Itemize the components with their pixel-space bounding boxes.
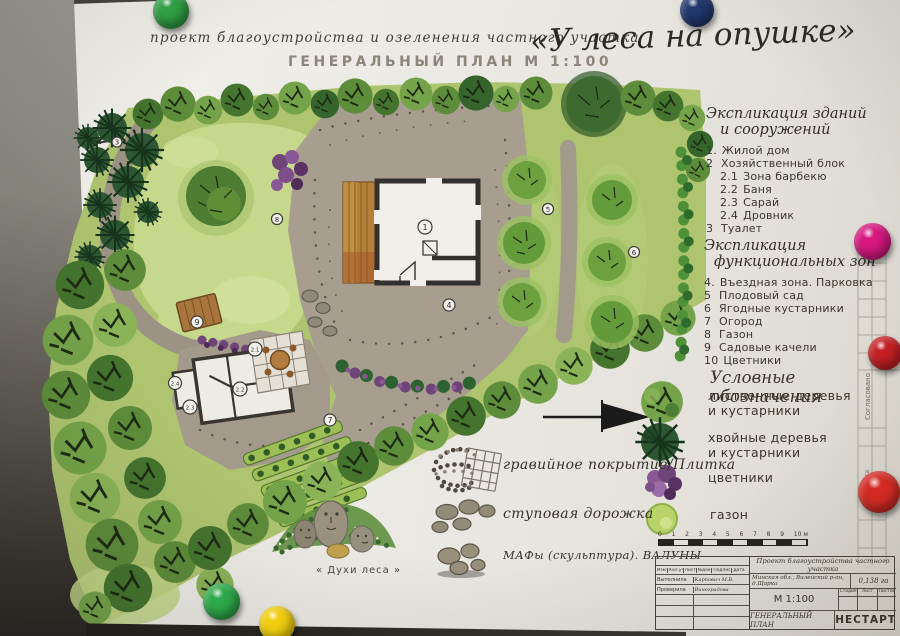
list-item: 2.1Зона барбекю: [706, 170, 898, 183]
list-item: 4.Въездная зона. Парковка: [704, 276, 898, 289]
list-item: 8Газон: [704, 328, 898, 341]
title-block: Изм Кол.уч Лист №док Подпись Дата Выполн…: [655, 556, 895, 630]
title-block-location-row: Минская обл., Вилейский р-он, д.Щарка 0,…: [750, 574, 896, 589]
buildings-list: 1.Жилой дом 2Хозяйственный блок 2.1Зона …: [706, 144, 898, 235]
sculpture-caption: « Духи леса »: [316, 565, 401, 576]
scale-bar-numbers: 012345678910 м: [658, 531, 808, 538]
scale-bar: 012345678910 м: [658, 531, 808, 546]
plan-scale-line: ГЕНЕРАЛЬНЫЙ ПЛАН М 1:100: [288, 54, 612, 70]
title-block-revision-grid: Изм Кол.уч Лист №док Подпись Дата Выполн…: [656, 557, 750, 629]
surface-label-stepping: ступовая дорожка: [503, 506, 654, 522]
surface-label-gravel: гравийное покрытие/Плитка: [503, 457, 736, 473]
magnet-pink-right: [854, 223, 891, 260]
list-item: 1.Жилой дом: [706, 144, 898, 157]
title-block-location: Минская обл., Вилейский р-он, д.Щарка: [750, 574, 850, 588]
title-block-org: НЕСТАРТ: [834, 611, 896, 629]
title-block-main: Проект благоустройства частного участка …: [750, 557, 896, 629]
photo-of-landscape-plan: 1 2.1 2.2 2.3 2.4 3 4 5 6 7 8 9: [0, 0, 900, 636]
legend-label-deciduous: лиственные деревьяи кустарники: [708, 388, 851, 418]
magnet-green-bottom: [203, 583, 240, 620]
legend-label-lawn: газон: [710, 507, 748, 522]
explication-buildings: Экспликация зданий и сооружений 1.Жилой …: [706, 106, 898, 235]
legend-label-conifer: хвойные деревьяи кустарники: [708, 430, 827, 460]
approval-strip-label: Согласовано: [864, 373, 872, 420]
list-item: 2Хозяйственный блок: [706, 157, 898, 170]
list-item: 2.4Дровник: [706, 209, 898, 222]
title-block-doc-title: ГЕНЕРАЛЬНЫЙ ПЛАН: [750, 611, 834, 629]
list-item: 7Огород: [704, 315, 898, 328]
title-block-doc-row: ГЕНЕРАЛЬНЫЙ ПЛАН НЕСТАРТ: [750, 611, 896, 629]
title-block-project: Проект благоустройства частного участка: [750, 557, 896, 574]
list-item: 2.3Сарай: [706, 196, 898, 209]
scale-bar-segments: [658, 539, 808, 546]
title-block-area: 0,138 га: [850, 574, 896, 588]
section-title: Экспликация зданий и сооружений: [706, 106, 898, 138]
list-item: 2.2Баня: [706, 183, 898, 196]
magnet-red-right: [868, 336, 900, 370]
list-item: 5Плодовый сад: [704, 289, 898, 302]
magnet-yellow-bottom: [259, 606, 295, 636]
title-block-scale-row: М 1:100 Стадия Лист Листов: [750, 589, 896, 611]
magnet-red-lower-right: [858, 471, 900, 513]
title-block-scale: М 1:100: [750, 589, 838, 610]
list-item: 6Ягодные кустарники: [704, 302, 898, 315]
